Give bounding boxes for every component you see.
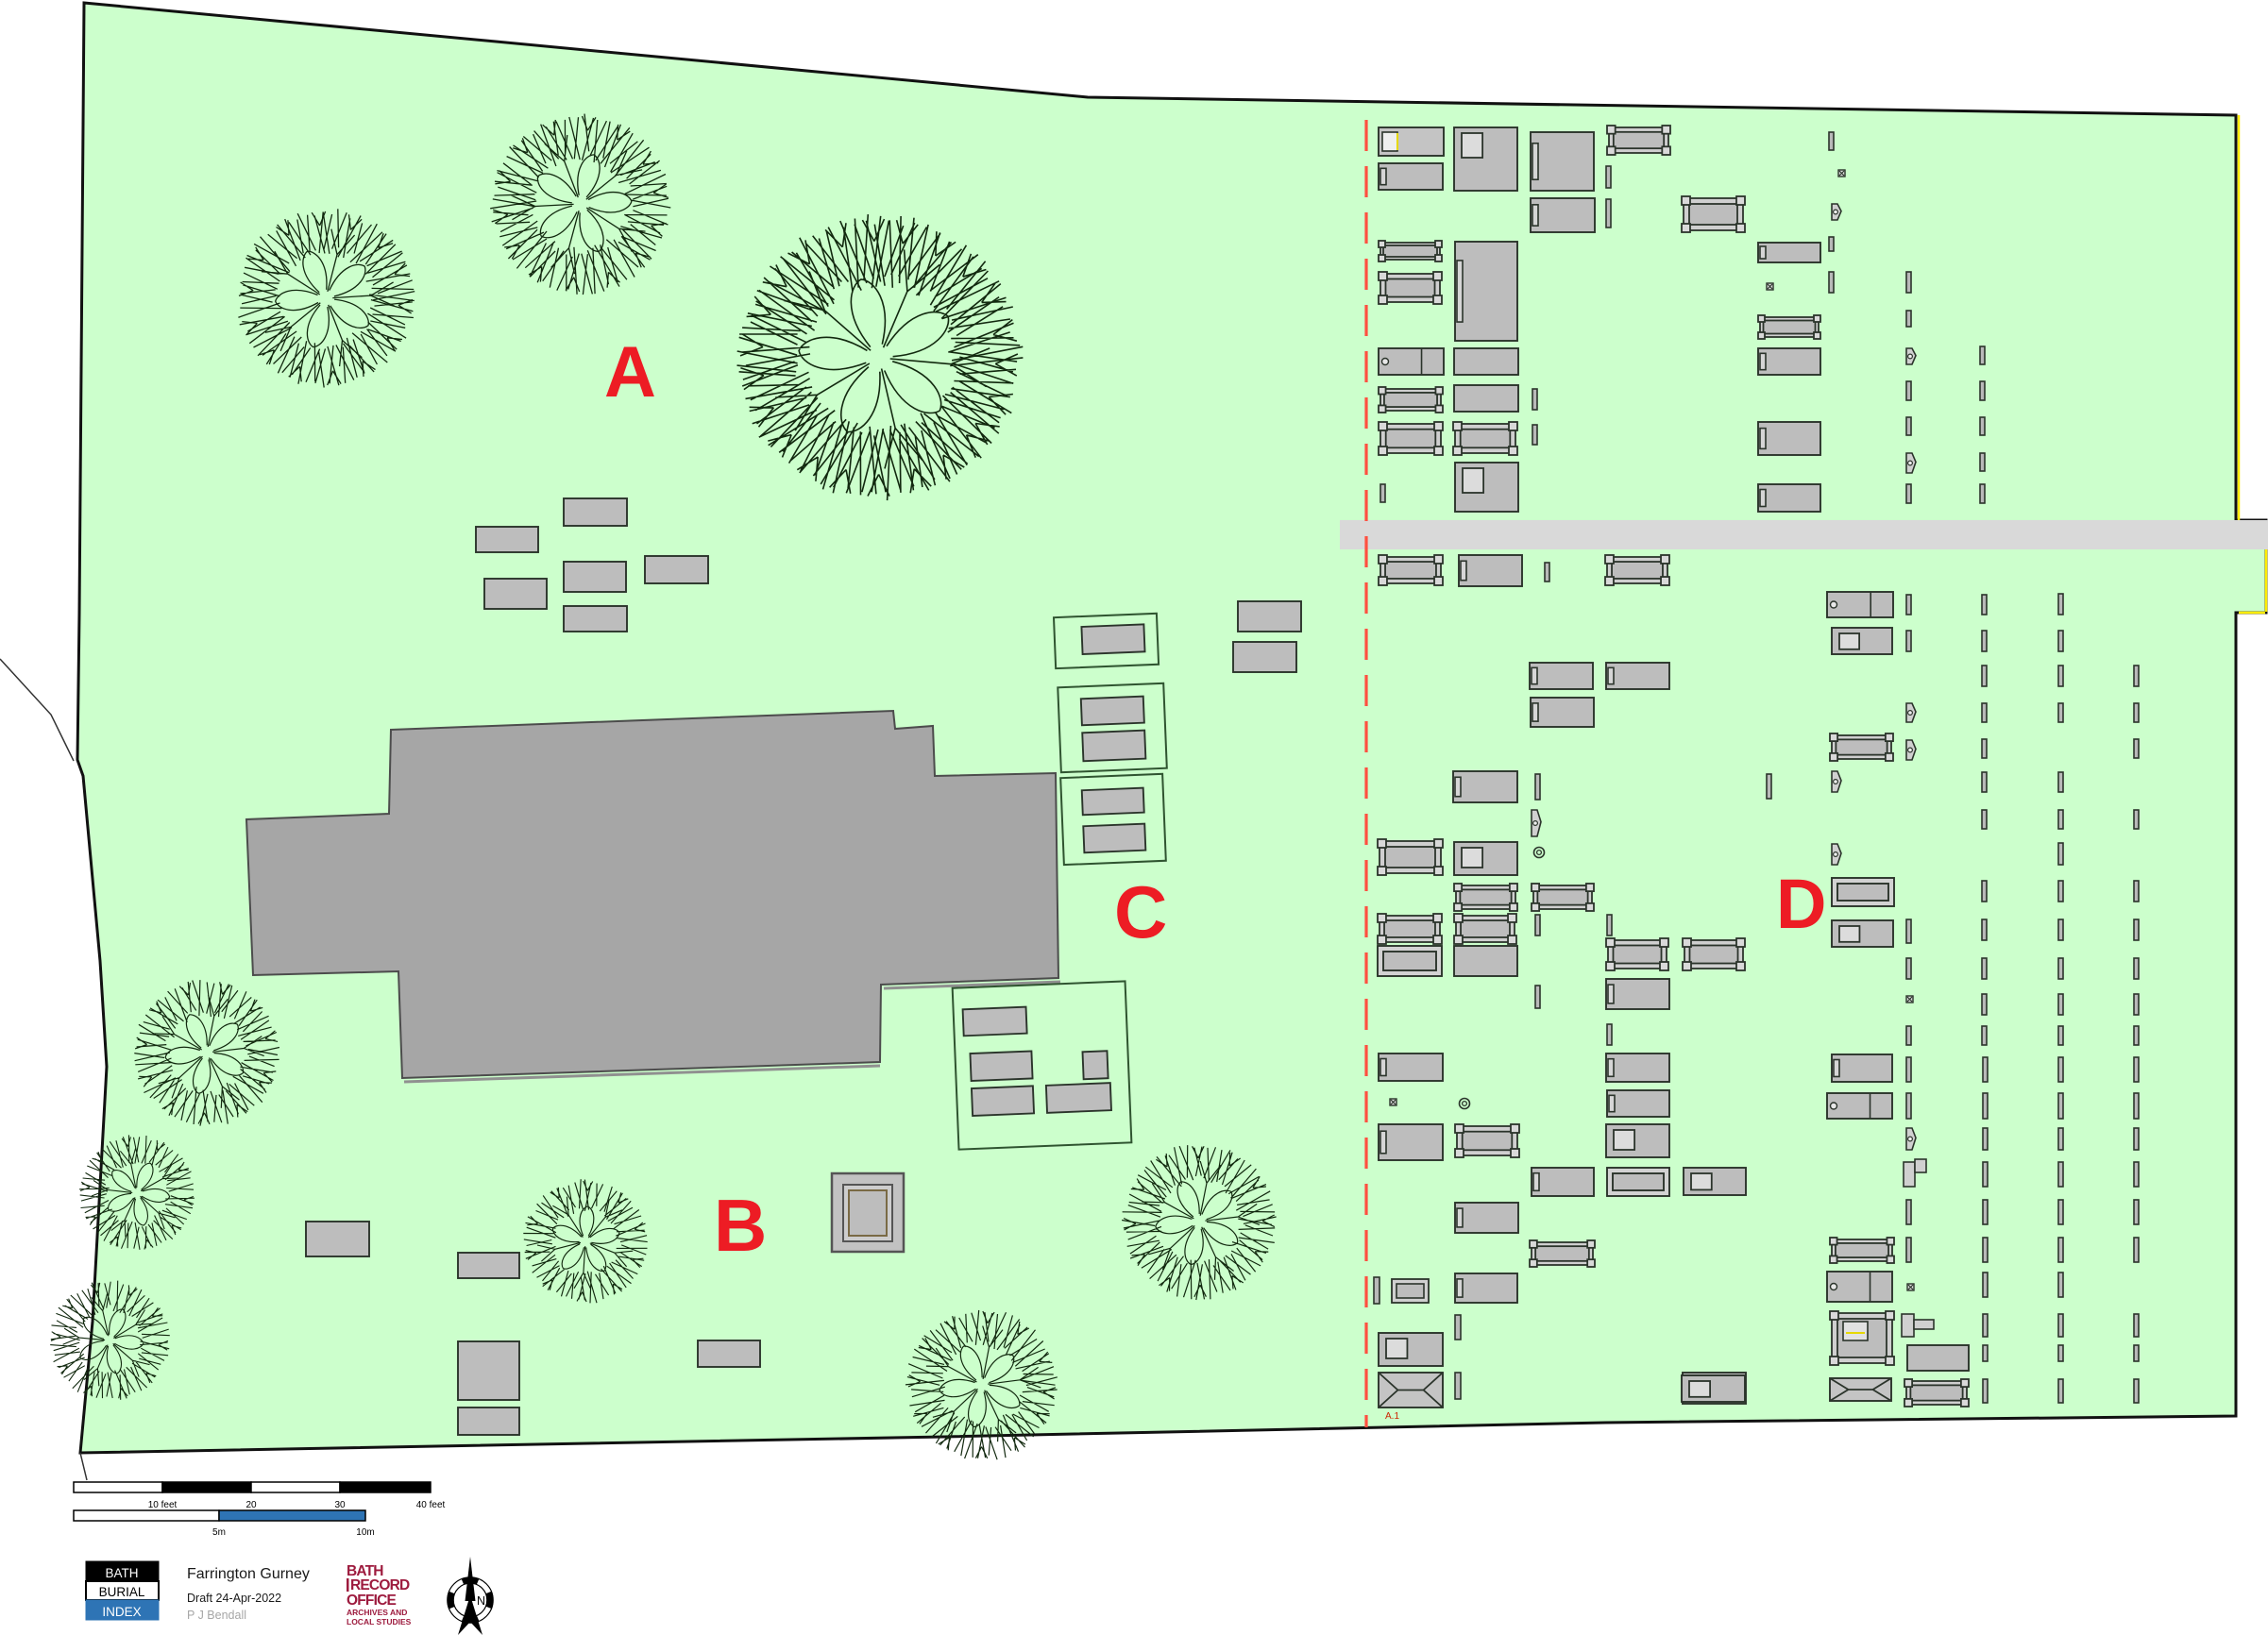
svg-text:10 feet: 10 feet [148, 1500, 178, 1510]
svg-text:A.1: A.1 [1385, 1411, 1399, 1422]
svg-text:B: B [714, 1184, 767, 1267]
svg-text:A: A [604, 332, 656, 413]
svg-text:LOCAL STUDIES: LOCAL STUDIES [347, 1617, 412, 1627]
svg-text:30: 30 [334, 1500, 346, 1510]
svg-text:BURIAL: BURIAL [99, 1585, 145, 1599]
svg-text:20: 20 [245, 1500, 257, 1510]
svg-text:5m: 5m [212, 1527, 226, 1538]
svg-text:40 feet: 40 feet [416, 1500, 446, 1510]
svg-text:Farrington Gurney: Farrington Gurney [187, 1566, 310, 1582]
svg-text:D: D [1776, 865, 1826, 943]
svg-text:N: N [477, 1594, 485, 1608]
svg-text:P J Bendall: P J Bendall [187, 1609, 246, 1622]
svg-text:C: C [1114, 870, 1167, 953]
svg-text:RECORD: RECORD [350, 1577, 410, 1593]
svg-text:Draft 24-Apr-2022: Draft 24-Apr-2022 [187, 1592, 281, 1605]
svg-text:OFFICE: OFFICE [347, 1593, 396, 1609]
svg-text:ARCHIVES AND: ARCHIVES AND [347, 1608, 407, 1617]
svg-text:INDEX: INDEX [102, 1605, 141, 1619]
svg-text:10m: 10m [356, 1527, 374, 1538]
svg-text:BATH: BATH [105, 1566, 138, 1580]
